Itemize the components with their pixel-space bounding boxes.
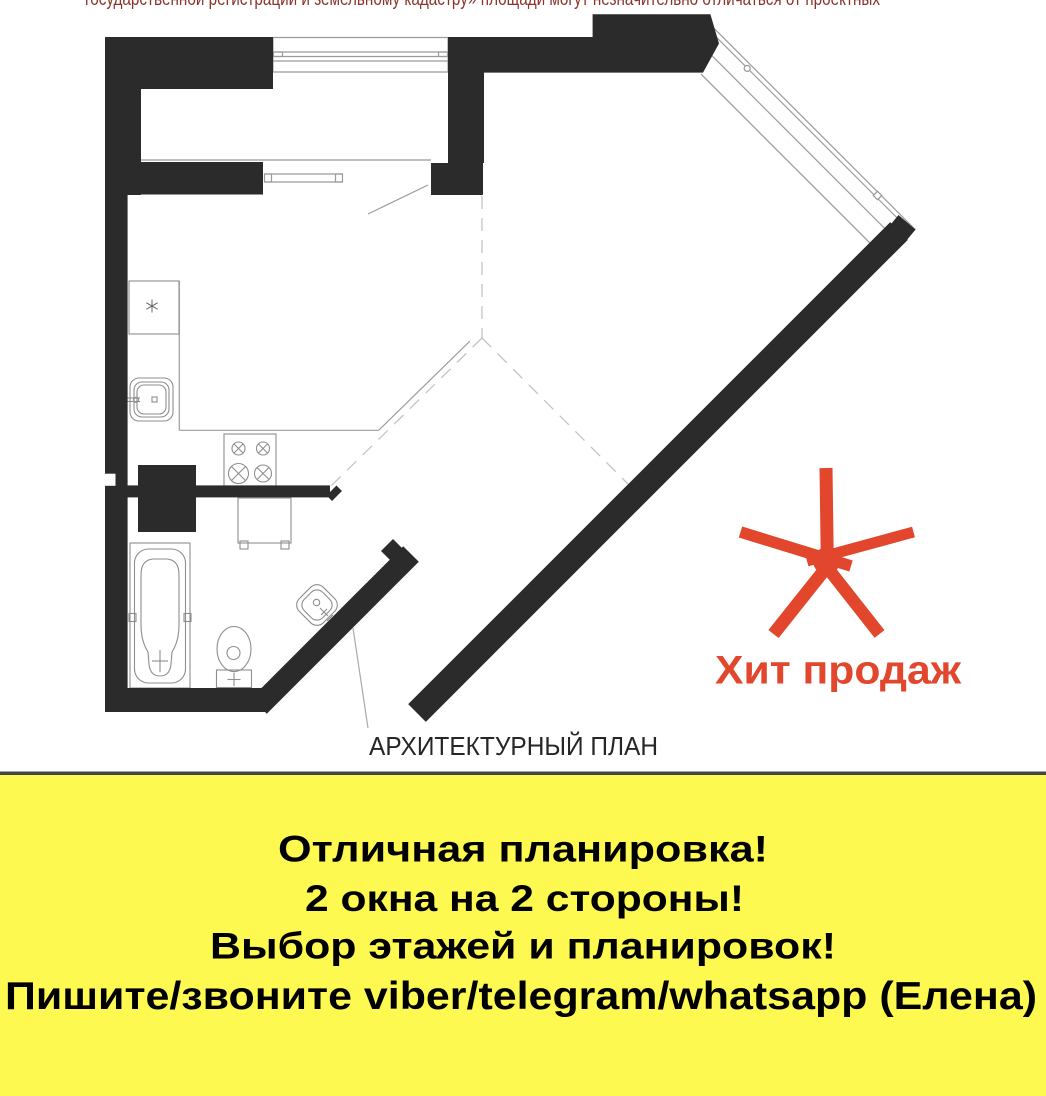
- svg-text:Отличная планировка!: Отличная планировка!: [278, 829, 768, 870]
- svg-text:Хит продаж: Хит продаж: [715, 649, 962, 693]
- svg-text:государственной регистрации и: государственной регистрации и земельному…: [85, 0, 880, 10]
- svg-text:Выбор этажей и планировок!: Выбор этажей и планировок!: [210, 926, 836, 967]
- svg-text:Пишите/звоните viber/telegram/: Пишите/звоните viber/telegram/whatsapp (…: [5, 975, 1037, 1018]
- svg-text:АРХИТЕКТУРНЫЙ ПЛАН: АРХИТЕКТУРНЫЙ ПЛАН: [369, 731, 658, 761]
- svg-text:2 окна на 2 стороны!: 2 окна на 2 стороны!: [305, 878, 744, 919]
